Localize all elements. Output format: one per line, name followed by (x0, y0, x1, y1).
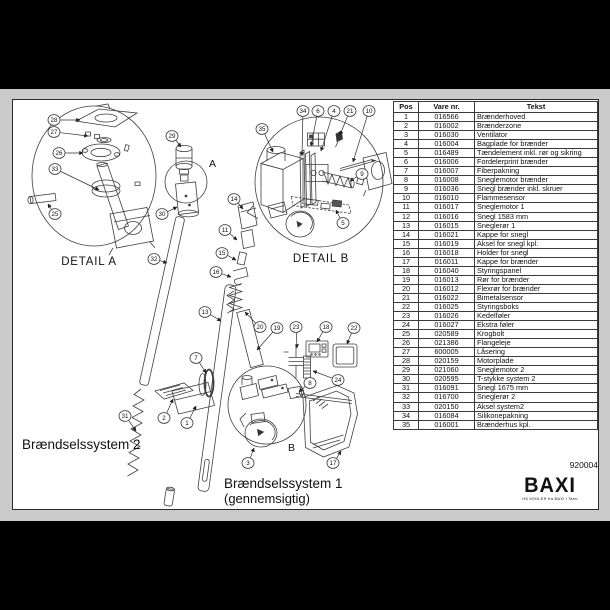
callout-8: 8 (304, 378, 316, 389)
table-row: 31016091Snegl 1675 mm (394, 384, 598, 393)
svg-text:31: 31 (122, 413, 129, 420)
callout-10: 10 (363, 106, 375, 117)
table-row: 33020150Aksel system2 (394, 402, 598, 411)
callout-6: 6 (312, 106, 324, 117)
table-row: 21016022Bimetalsensor (394, 293, 598, 302)
table-cell: 33 (394, 402, 419, 411)
table-cell: Sneglemotor brænder (475, 176, 598, 185)
callout-leader-24 (313, 371, 332, 378)
callout-27: 27 (48, 127, 60, 138)
callout-32: 32 (148, 254, 160, 265)
svg-text:14: 14 (231, 196, 238, 203)
detail-a-label: DETAIL A (61, 256, 117, 268)
table-row: 11016017Sneglemotor 1 (394, 203, 598, 212)
table-cell: 016001 (419, 420, 475, 429)
table-row: 13016015Sneglerør 1 (394, 221, 598, 230)
table-row: 18016040Styringspanel (394, 266, 598, 275)
callout-leader-19 (257, 332, 273, 350)
table-cell: Kedelføler (475, 312, 598, 321)
sneglemotor2-drawing (165, 145, 207, 217)
svg-text:7: 7 (194, 355, 198, 362)
table-cell: 1 (394, 113, 419, 122)
callout-leader-5 (336, 210, 340, 218)
svg-text:16: 16 (213, 269, 220, 276)
callout-leader-15 (228, 256, 236, 260)
svg-text:19: 19 (274, 325, 281, 332)
table-cell: 016011 (419, 257, 475, 266)
table-cell: 016007 (419, 167, 475, 176)
table-cell: 27 (394, 348, 419, 357)
svg-text:15: 15 (219, 250, 226, 257)
kappe-for-brænder-drawing (303, 386, 358, 458)
callout-leader-11 (230, 234, 237, 240)
table-cell: Ventilator (475, 131, 598, 140)
svg-text:17: 17 (330, 460, 337, 467)
callout-leader-34 (302, 117, 303, 156)
table-cell: Styringsboks (475, 302, 598, 311)
callout-22: 22 (348, 323, 360, 334)
table-cell: 16 (394, 248, 419, 257)
table-row: 1016566Brænderhoved (394, 113, 598, 122)
svg-text:22: 22 (351, 325, 358, 332)
table-row: 22016025Styringsboks (394, 302, 598, 311)
brænderhoved-sys2-drawing (155, 370, 215, 415)
table-row: 14016021Kappe for snegl (394, 230, 598, 239)
table-row: 27600005Låsering (394, 348, 598, 357)
svg-text:29: 29 (169, 133, 176, 140)
table-cell: 32 (394, 393, 419, 402)
table-cell: 6 (394, 158, 419, 167)
svg-text:25: 25 (52, 211, 59, 218)
callout-leader-18 (317, 332, 323, 342)
callout-leader-13 (211, 315, 221, 321)
callout-19: 19 (271, 323, 283, 334)
callout-25: 25 (49, 209, 61, 220)
callout-7: 7 (190, 353, 202, 364)
callout-5: 5 (337, 218, 349, 229)
table-cell: Sneglemotor 2 (475, 366, 598, 375)
table-row: 6016006Fordelerprint brænder (394, 158, 598, 167)
table-cell: 016084 (419, 411, 475, 420)
callout-leader-27 (60, 133, 88, 136)
table-cell: 016012 (419, 284, 475, 293)
callout-3: 3 (242, 458, 254, 469)
callout-15: 15 (216, 248, 228, 259)
callout-leader-3 (250, 448, 254, 458)
callout-leader-7 (200, 363, 206, 373)
table-cell: 23 (394, 312, 419, 321)
svg-text:33: 33 (52, 166, 59, 173)
table-cell: Kappe for snegl (475, 230, 598, 239)
svg-text:18: 18 (323, 324, 330, 331)
callout-leader-23 (296, 333, 297, 348)
table-cell: 021060 (419, 366, 475, 375)
table-row: 4016004Bagplade for brænder (394, 140, 598, 149)
table-row: 28020159Motorplade (394, 357, 598, 366)
table-cell: 15 (394, 239, 419, 248)
svg-text:10: 10 (366, 108, 373, 115)
system2-label: Brændselssystem 2 (22, 437, 141, 452)
table-cell: 20 (394, 284, 419, 293)
svg-text:1: 1 (185, 420, 189, 427)
table-row: 5016489Tændelement inkl. rør og sikring (394, 149, 598, 158)
table-row: 10016010Flammesensor (394, 194, 598, 203)
table-cell: 35 (394, 420, 419, 429)
svg-text:6: 6 (316, 108, 320, 115)
table-cell: 17 (394, 257, 419, 266)
table-cell: Flammesensor (475, 194, 598, 203)
callout-leader-14 (238, 203, 243, 209)
table-row: 7016007Fiberpakning (394, 167, 598, 176)
table-cell: 24 (394, 321, 419, 330)
table-row: 29021060Sneglemotor 2 (394, 366, 598, 375)
table-cell: 016021 (419, 230, 475, 239)
table-row: 2016002Brænderzone (394, 122, 598, 131)
svg-text:13: 13 (202, 309, 209, 316)
svg-text:11: 11 (222, 227, 229, 234)
detail-a-drawing (28, 104, 156, 255)
table-cell: 12 (394, 212, 419, 221)
table-cell: 016006 (419, 158, 475, 167)
table-cell: 3 (394, 131, 419, 140)
table-cell: 020589 (419, 330, 475, 339)
callout-leader-6 (311, 117, 317, 146)
svg-text:4: 4 (332, 108, 336, 115)
table-cell: Motorplade (475, 357, 598, 366)
table-cell: 016091 (419, 384, 475, 393)
table-cell: 7 (394, 167, 419, 176)
table-row: 9016036Snegl brænder inkl. skruer (394, 185, 598, 194)
table-row: 17016011Kappe for brænder (394, 257, 598, 266)
baxi-logo-wordmark: BAXI (505, 477, 595, 497)
system1-sub-label: (gennemsigtig) (224, 491, 310, 506)
table-cell: 14 (394, 230, 419, 239)
table-cell: Holder for snegl (475, 248, 598, 257)
table-cell: 28 (394, 357, 419, 366)
callout-1: 1 (181, 418, 193, 429)
table-row: 32016700Sneglerør 2 (394, 393, 598, 402)
table-cell: T-stykke system 2 (475, 375, 598, 384)
table-row: 19016013Rør for brænder (394, 275, 598, 284)
svg-text:23: 23 (293, 324, 300, 331)
baxi-logo: BAXI HS KEDLER fra BAXI i Tarm (505, 477, 595, 501)
table-cell: 020595 (419, 375, 475, 384)
table-cell: 19 (394, 275, 419, 284)
table-cell: 016018 (419, 248, 475, 257)
system1-label: Brændselssystem 1 (224, 476, 343, 491)
callout-28: 28 (48, 115, 60, 126)
table-cell: 016025 (419, 302, 475, 311)
table-cell: 8 (394, 176, 419, 185)
table-cell: 34 (394, 411, 419, 420)
table-row: 34016084Silikonepakning (394, 411, 598, 420)
table-cell: 016010 (419, 194, 475, 203)
svg-text:2: 2 (162, 415, 166, 422)
callout-leader-17 (337, 451, 341, 458)
table-cell: Brænderhoved (475, 113, 598, 122)
table-cell: 016015 (419, 221, 475, 230)
table-cell: 11 (394, 203, 419, 212)
table-cell: 016030 (419, 131, 475, 140)
table-cell: 31 (394, 384, 419, 393)
table-cell: 016040 (419, 266, 475, 275)
callout-30: 30 (156, 209, 168, 220)
table-cell: 600005 (419, 348, 475, 357)
table-row: 12016016Snegl 1583 mm (394, 212, 598, 221)
svg-text:32: 32 (151, 256, 158, 263)
table-cell: 9 (394, 185, 419, 194)
table-row: 20016012Flexrør for brænder (394, 284, 598, 293)
table-cell: 016004 (419, 140, 475, 149)
callout-29: 29 (166, 131, 178, 142)
callout-leader-30 (168, 207, 177, 212)
table-cell: 18 (394, 266, 419, 275)
table-cell: 21 (394, 293, 419, 302)
callout-leader-35 (265, 134, 273, 152)
parts-table-header-row: PosVare nr.Tekst (394, 102, 598, 113)
table-row: 26021386Flangeleje (394, 339, 598, 348)
callout-2: 2 (158, 413, 170, 424)
table-cell: Sneglerør 1 (475, 221, 598, 230)
callout-33: 33 (49, 164, 61, 175)
svg-text:30: 30 (159, 211, 166, 218)
callout-21: 21 (344, 106, 356, 117)
table-row: 8016008Sneglemotor brænder (394, 176, 598, 185)
callout-23: 23 (290, 322, 302, 333)
callout-leader-10 (353, 117, 367, 162)
table-cell: 016022 (419, 293, 475, 302)
callout-24: 24 (332, 375, 344, 386)
table-row: 30020595T-stykke system 2 (394, 375, 598, 384)
table-cell: 020159 (419, 357, 475, 366)
callout-9: 9 (356, 169, 368, 180)
screenshot-root: { "page": { "sheet_number": "920004" }, … (0, 0, 610, 610)
table-cell: 016002 (419, 122, 475, 131)
table-cell: Snegl brænder inkl. skruer (475, 185, 598, 194)
table-cell: Låsering (475, 348, 598, 357)
svg-text:3: 3 (246, 460, 250, 467)
table-header-cell: Pos (394, 102, 419, 113)
table-cell: 016019 (419, 239, 475, 248)
table-header-cell: Vare nr. (419, 102, 475, 113)
table-cell: Ekstra føler (475, 321, 598, 330)
table-row: 23016026Kedelføler (394, 312, 598, 321)
callout-leader-4 (321, 117, 332, 151)
table-cell: 016008 (419, 176, 475, 185)
marker-a-label: A (209, 158, 216, 170)
table-cell: Flexrør for brænder (475, 284, 598, 293)
marker-b-label: B (288, 442, 295, 454)
callout-20: 20 (254, 322, 266, 333)
callout-11: 11 (219, 225, 231, 236)
svg-text:5: 5 (341, 220, 345, 227)
table-cell: 4 (394, 140, 419, 149)
table-cell: 016016 (419, 212, 475, 221)
callout-leader-33 (61, 171, 99, 190)
svg-text:35: 35 (259, 126, 266, 133)
table-cell: Aksel system2 (475, 402, 598, 411)
table-cell: 5 (394, 149, 419, 158)
parts-table: PosVare nr.Tekst 1016566Brænderhoved2016… (393, 101, 598, 430)
table-cell: Brænderzone (475, 122, 598, 131)
table-cell: 26 (394, 339, 419, 348)
table-row: 16016018Holder for snegl (394, 248, 598, 257)
table-cell: Sneglemotor 1 (475, 203, 598, 212)
svg-text:9: 9 (360, 171, 364, 178)
table-cell: 016700 (419, 393, 475, 402)
table-cell: Rør for brænder (475, 275, 598, 284)
table-cell: 021386 (419, 339, 475, 348)
callout-leader-25 (48, 204, 51, 209)
svg-text:26: 26 (56, 150, 63, 157)
table-cell: Aksel for snegl kpl. (475, 239, 598, 248)
table-cell: Silikonepakning (475, 411, 598, 420)
callout-leader-21 (340, 116, 348, 135)
table-cell: 22 (394, 302, 419, 311)
svg-text:20: 20 (257, 324, 264, 331)
svg-text:21: 21 (347, 108, 354, 115)
callout-14: 14 (228, 194, 240, 205)
svg-text:34: 34 (300, 108, 307, 115)
callout-4: 4 (328, 106, 340, 117)
svg-text:8: 8 (308, 380, 312, 387)
table-cell: 13 (394, 221, 419, 230)
callout-34: 34 (297, 106, 309, 117)
callout-18: 18 (320, 322, 332, 333)
table-cell: 020150 (419, 402, 475, 411)
table-cell: 016489 (419, 149, 475, 158)
table-cell: 016013 (419, 275, 475, 284)
callout-31: 31 (119, 411, 131, 422)
callout-17: 17 (327, 458, 339, 469)
snegl-parts-column (233, 202, 257, 285)
detail-b-label: DETAIL B (293, 253, 349, 265)
detail-b-drawing (247, 117, 392, 247)
table-cell: Styringspanel (475, 266, 598, 275)
table-cell: 016566 (419, 113, 475, 122)
callout-leader-22 (347, 333, 351, 344)
table-cell: Bimetalsensor (475, 293, 598, 302)
callout-35: 35 (256, 124, 268, 135)
table-cell: 30 (394, 375, 419, 384)
table-cell: 016017 (419, 203, 475, 212)
table-cell: Tændelement inkl. rør og sikring (475, 149, 598, 158)
callout-16: 16 (210, 267, 222, 278)
table-cell: Snegl 1583 mm (475, 212, 598, 221)
table-row: 3016030Ventilator (394, 131, 598, 140)
table-header-cell: Tekst (475, 102, 598, 113)
table-cell: Sneglerør 2 (475, 393, 598, 402)
table-cell: 25 (394, 330, 419, 339)
controls-drawing (284, 341, 358, 378)
table-cell: Brænderhus kpl. (475, 420, 598, 429)
callout-26: 26 (53, 148, 65, 159)
sheet-number: 920004 (393, 460, 598, 470)
table-row: 24016027Ekstra føler (394, 321, 598, 330)
table-row: 15016019Aksel for snegl kpl. (394, 239, 598, 248)
table-cell: Fiberpakning (475, 167, 598, 176)
callout-13: 13 (199, 307, 211, 318)
table-cell: 10 (394, 194, 419, 203)
callout-leader-2 (167, 399, 173, 413)
table-cell: 2 (394, 122, 419, 131)
table-cell: Flangeleje (475, 339, 598, 348)
svg-text:27: 27 (51, 129, 58, 136)
table-cell: 016036 (419, 185, 475, 194)
table-cell: Bagplade for brænder (475, 140, 598, 149)
svg-text:24: 24 (335, 377, 342, 384)
table-cell: Kappe for brænder (475, 257, 598, 266)
callout-leader-1 (190, 406, 196, 418)
table-row: 25020589Krogbolt (394, 330, 598, 339)
table-cell: 29 (394, 366, 419, 375)
table-cell: Snegl 1675 mm (475, 384, 598, 393)
table-cell: Krogbolt (475, 330, 598, 339)
table-cell: 016027 (419, 321, 475, 330)
callout-leader-16 (222, 274, 231, 277)
table-cell: 016026 (419, 312, 475, 321)
table-row: 35016001Brænderhus kpl. (394, 420, 598, 429)
svg-text:28: 28 (51, 117, 58, 124)
table-cell: Fordelerprint brænder (475, 158, 598, 167)
